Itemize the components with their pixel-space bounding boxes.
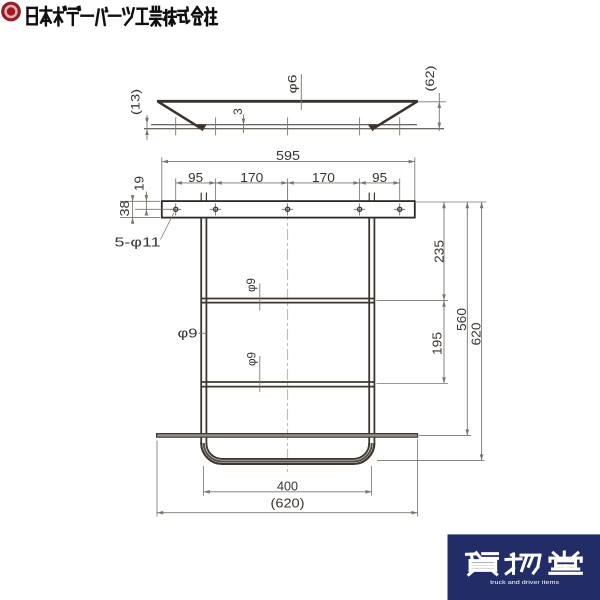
svg-text:95: 95 xyxy=(188,170,203,185)
svg-text:95: 95 xyxy=(372,170,387,185)
svg-text:3: 3 xyxy=(231,108,245,115)
svg-text:235: 235 xyxy=(431,240,446,263)
svg-text:400: 400 xyxy=(277,479,298,494)
svg-text:195: 195 xyxy=(430,332,445,355)
svg-text:(13): (13) xyxy=(129,89,143,115)
svg-text:(62): (62) xyxy=(423,66,437,92)
svg-text:170: 170 xyxy=(312,170,335,185)
svg-text:595: 595 xyxy=(276,148,300,163)
svg-text:(620): (620) xyxy=(271,496,305,511)
svg-text:φ6: φ6 xyxy=(286,74,300,93)
svg-text:φ9: φ9 xyxy=(244,278,258,292)
svg-text:560: 560 xyxy=(454,308,469,331)
svg-text:620: 620 xyxy=(469,323,484,346)
svg-text:5-φ11: 5-φ11 xyxy=(115,234,161,249)
svg-text:φ9: φ9 xyxy=(245,352,259,366)
svg-text:truck and driver items: truck and driver items xyxy=(490,580,559,586)
svg-text:φ9: φ9 xyxy=(178,327,198,341)
svg-text:19: 19 xyxy=(132,176,146,191)
svg-text:38: 38 xyxy=(118,200,132,216)
svg-text:170: 170 xyxy=(240,170,263,185)
